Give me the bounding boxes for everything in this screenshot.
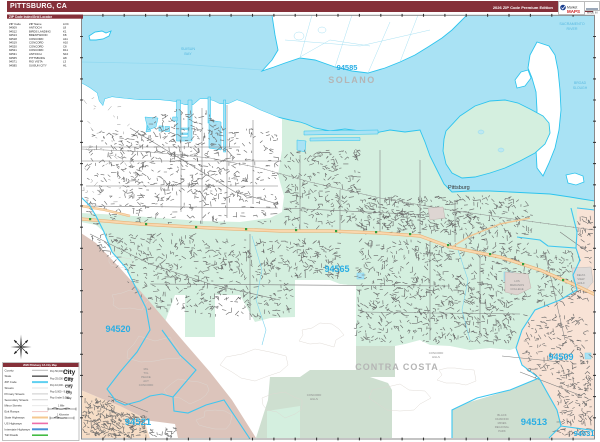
svg-text:SACRAMENTO: SACRAMENTO <box>559 22 584 26</box>
svg-text:94513: 94513 <box>521 417 547 428</box>
svg-text:94585: 94585 <box>9 63 17 67</box>
svg-text:MADE IN: MADE IN <box>587 12 598 15</box>
svg-text:SUISUN CITY: SUISUN CITY <box>29 63 47 67</box>
svg-text:HILLS: HILLS <box>432 355 440 359</box>
svg-text:SOLANO: SOLANO <box>328 75 376 85</box>
svg-text:94585: 94585 <box>337 63 358 72</box>
svg-text:SUISUN: SUISUN <box>181 47 196 51</box>
svg-text:94520: 94520 <box>105 324 130 334</box>
svg-text:CONTRA COSTA: CONTRA COSTA <box>355 362 439 372</box>
svg-text:94565: 94565 <box>324 264 349 274</box>
svg-text:CONCORD: CONCORD <box>139 383 153 387</box>
svg-text:94509: 94509 <box>548 352 573 362</box>
svg-text:PARK: PARK <box>498 429 506 433</box>
svg-text:SLOUGH: SLOUGH <box>573 86 588 90</box>
svg-text:MAPS: MAPS <box>567 9 580 14</box>
svg-text:94521: 94521 <box>125 417 152 428</box>
svg-text:BROAD: BROAD <box>574 81 587 85</box>
svg-text:GOLF: GOLF <box>577 281 585 285</box>
svg-text:RIVER: RIVER <box>567 27 578 31</box>
svg-text:COLLEGE: COLLEGE <box>510 287 523 291</box>
svg-text:Pittsburg: Pittsburg <box>448 185 470 191</box>
svg-text:ZIP Code Index/Grid Locator: ZIP Code Index/Grid Locator <box>9 15 53 19</box>
svg-text:BAY: BAY <box>184 52 192 56</box>
svg-text:HILLS: HILLS <box>310 397 318 401</box>
svg-text:H1: H1 <box>63 63 67 67</box>
svg-text:94531: 94531 <box>574 429 595 438</box>
